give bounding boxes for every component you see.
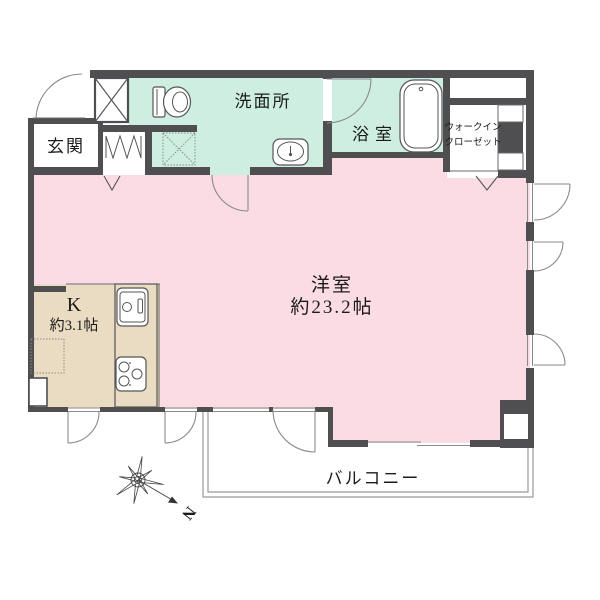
window-r1-arc (534, 184, 570, 220)
window-r3-arc (534, 334, 565, 365)
shoe-closet-icon (106, 136, 141, 158)
bathroom-label: 浴室 (352, 125, 398, 144)
wall-closet-right (145, 125, 152, 175)
wall-washroom-bottom-left (152, 167, 210, 175)
wall-entrance-right (98, 118, 103, 174)
pillar-bottom-left (29, 378, 47, 406)
stove-icon (116, 357, 146, 391)
wall-bathroom-bottom (332, 152, 450, 158)
wall-bottom-3 (197, 407, 213, 412)
wall-right-4 (526, 368, 534, 400)
kitchen-label: K (67, 294, 82, 316)
wall-bottom-mid-1 (333, 440, 368, 447)
wic-label-line2: クローゼット (444, 136, 501, 148)
western-room-label: 洋室 (311, 274, 353, 296)
bathtub-icon (400, 80, 442, 152)
wall-bottom-step (328, 407, 333, 447)
duct-pocket-bottom (498, 153, 523, 170)
balcony-label: バルコニー (326, 469, 421, 488)
pipe-shaft-icon (95, 78, 128, 122)
wall-toilet-stub (103, 125, 197, 132)
washbasin-icon (273, 139, 308, 165)
wall-bottom-2 (100, 407, 165, 412)
pillar-void (504, 414, 528, 439)
window-r2-arc (534, 242, 563, 271)
washroom-label: 洗面所 (235, 92, 292, 111)
wic-label-line1: ウォークイン (444, 122, 501, 133)
north-label: N (178, 503, 199, 523)
wall-entrance-bottom (28, 167, 103, 175)
window-a-arc (68, 412, 99, 443)
balcony-door-arc (273, 410, 315, 452)
window-b-arc (165, 412, 196, 443)
wall-kitchen-stub (28, 286, 66, 292)
wall-bottom-mid-2 (470, 440, 500, 447)
kitchen-size: 約3.1帖 (50, 317, 99, 334)
entrance-door-arc (36, 74, 82, 118)
floor-plan-canvas: 玄関 洗面所 浴室 ウォークイン クローゼット 洋室 約23.2帖 K 約3.1… (0, 0, 600, 600)
wall-right-3 (526, 270, 534, 335)
north-arrow (168, 497, 178, 504)
kitchen-sink-icon (117, 288, 148, 326)
wall-bottom-1 (28, 407, 68, 412)
wall-wic-top (443, 98, 534, 105)
duct-pocket-top (498, 105, 523, 122)
toilet-icon (153, 87, 191, 117)
wall-right-2 (526, 222, 534, 241)
wall-bath-divider-top (323, 72, 332, 79)
wall-bath-divider-bottom (323, 121, 332, 175)
entrance-label: 玄関 (47, 137, 85, 156)
floor-plan: 玄関 洗面所 浴室 ウォークイン クローゼット 洋室 約23.2帖 K 約3.1… (0, 0, 600, 600)
wall-wic-chunk (498, 122, 523, 153)
western-room-size: 約23.2帖 (290, 296, 373, 318)
wall-top (90, 70, 534, 78)
wall-right-1 (526, 72, 534, 183)
wall-washroom-bottom-right (250, 167, 332, 175)
compass-icon: N (115, 456, 198, 523)
wall-entrance-top (28, 118, 103, 124)
balcony-window-mullion (269, 407, 273, 412)
